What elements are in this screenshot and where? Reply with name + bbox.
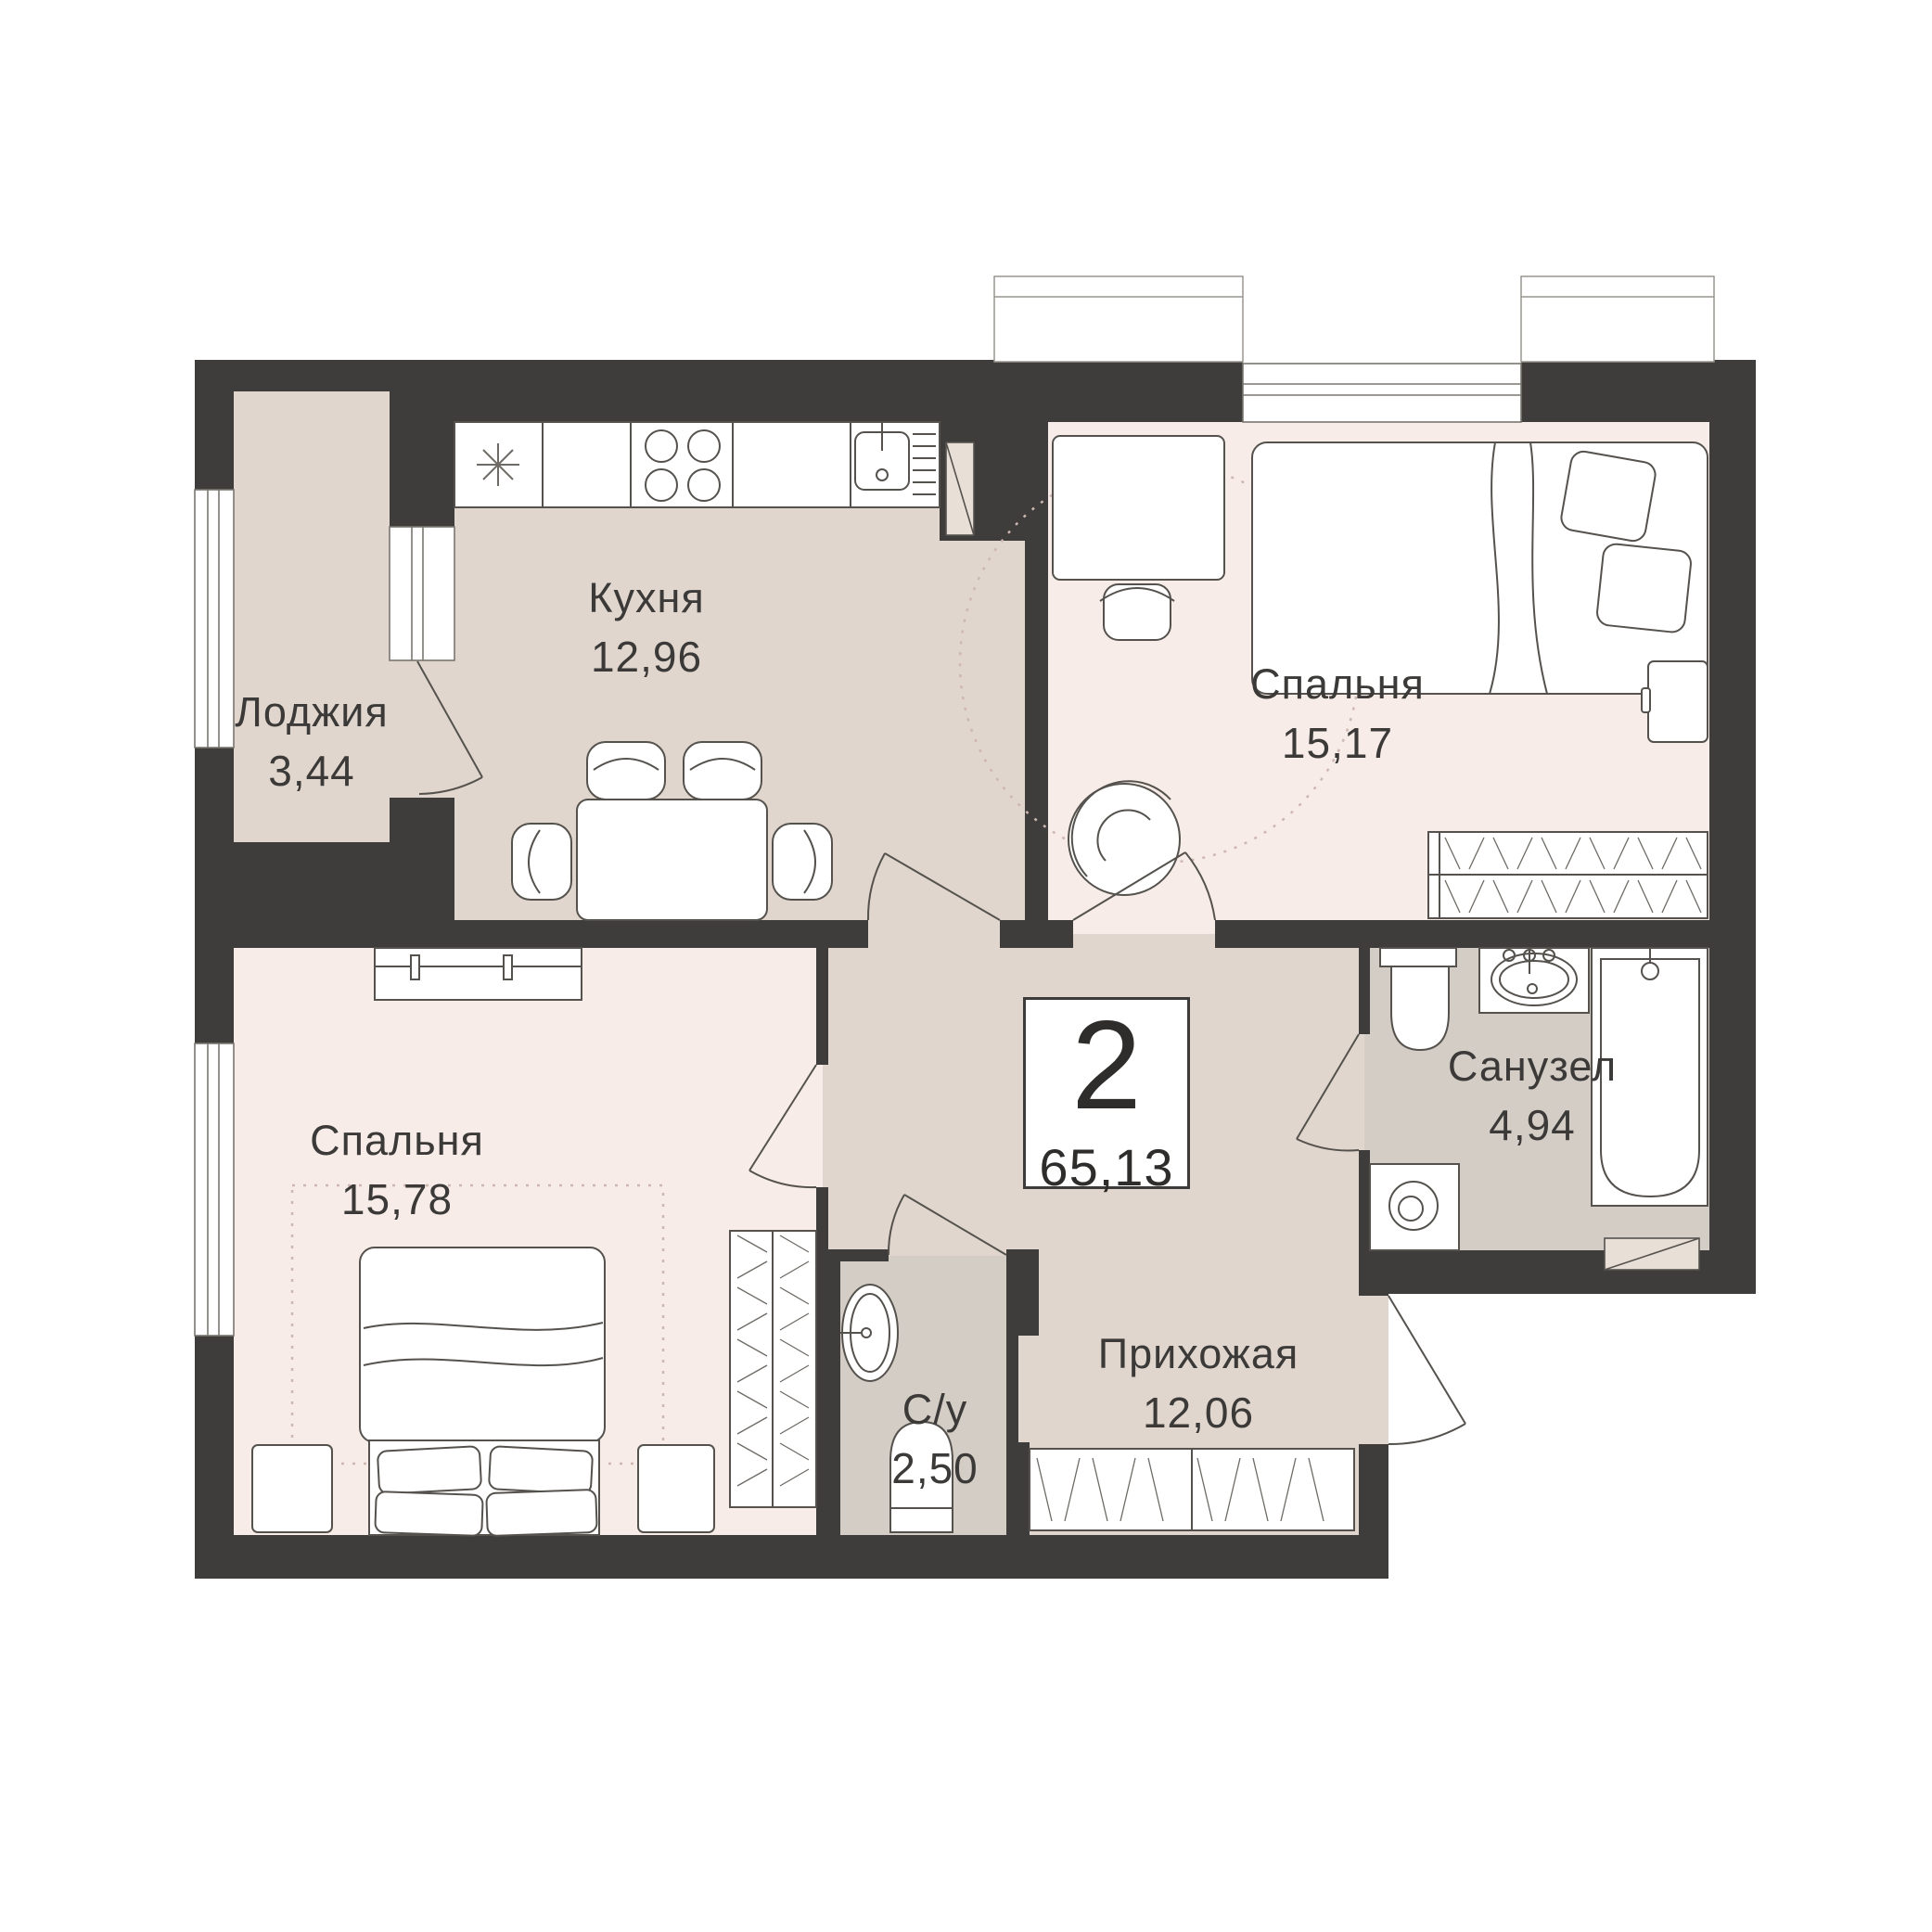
nightstand-icon	[1642, 661, 1708, 742]
room-name: Спальня	[310, 1117, 484, 1165]
room-area: 15,17	[1282, 718, 1393, 768]
room-name: Санузел	[1448, 1043, 1617, 1091]
bed-icon	[1252, 442, 1708, 694]
neighbor-outline	[994, 276, 1714, 362]
room-label-bedroom-top: Спальня 15,17	[1250, 660, 1425, 768]
room-name: Кухня	[588, 574, 704, 622]
wardrobe-icon	[730, 1231, 816, 1507]
room-name: С/у	[902, 1386, 968, 1434]
kitchen-counter	[454, 422, 940, 507]
dining-table	[577, 800, 767, 920]
floor-plan-canvas: Лоджия 3,44 Кухня 12,96 Спальня 15,17 Сп…	[0, 0, 1932, 1932]
apartment-summary-badge: 2 65,13	[1023, 997, 1190, 1189]
rooms-count: 2	[1071, 1002, 1142, 1128]
room-label-loggia: Лоджия 3,44	[235, 688, 388, 796]
bedroom-bottom-furniture	[252, 948, 816, 1536]
plan-symbols-layer	[0, 0, 1932, 1932]
hallway-wardrobe-icon	[1030, 1449, 1354, 1530]
room-name: Прихожая	[1098, 1330, 1299, 1378]
wc-sink-icon	[840, 1285, 898, 1381]
tv-console-icon	[375, 948, 582, 1000]
room-label-kitchen: Кухня 12,96	[588, 574, 704, 682]
apartment-plan: Лоджия 3,44 Кухня 12,96 Спальня 15,17 Сп…	[0, 0, 1932, 1932]
room-label-wc: С/у 2,50	[891, 1386, 979, 1493]
toilet-icon	[1380, 948, 1456, 1050]
room-area: 2,50	[891, 1443, 979, 1493]
room-name: Лоджия	[235, 688, 388, 736]
room-area: 3,44	[268, 746, 355, 796]
armchair-icon	[1068, 781, 1180, 895]
room-name: Спальня	[1250, 660, 1425, 709]
dining-set	[512, 742, 832, 920]
room-area: 4,94	[1489, 1100, 1576, 1150]
room-label-bathroom: Санузел 4,94	[1448, 1043, 1617, 1150]
total-area: 65,13	[1039, 1137, 1173, 1197]
desk-icon	[1053, 436, 1224, 640]
room-label-bedroom-bottom: Спальня 15,78	[310, 1117, 484, 1224]
room-label-hallway: Прихожая 12,06	[1098, 1330, 1299, 1438]
room-area: 12,96	[591, 632, 702, 682]
bed-icon	[360, 1247, 605, 1536]
wardrobe-icon	[1428, 832, 1708, 918]
washing-machine-icon	[1370, 1164, 1459, 1250]
bath-sink-icon	[1479, 948, 1589, 1013]
room-area: 15,78	[341, 1174, 453, 1224]
room-area: 12,06	[1143, 1388, 1254, 1438]
